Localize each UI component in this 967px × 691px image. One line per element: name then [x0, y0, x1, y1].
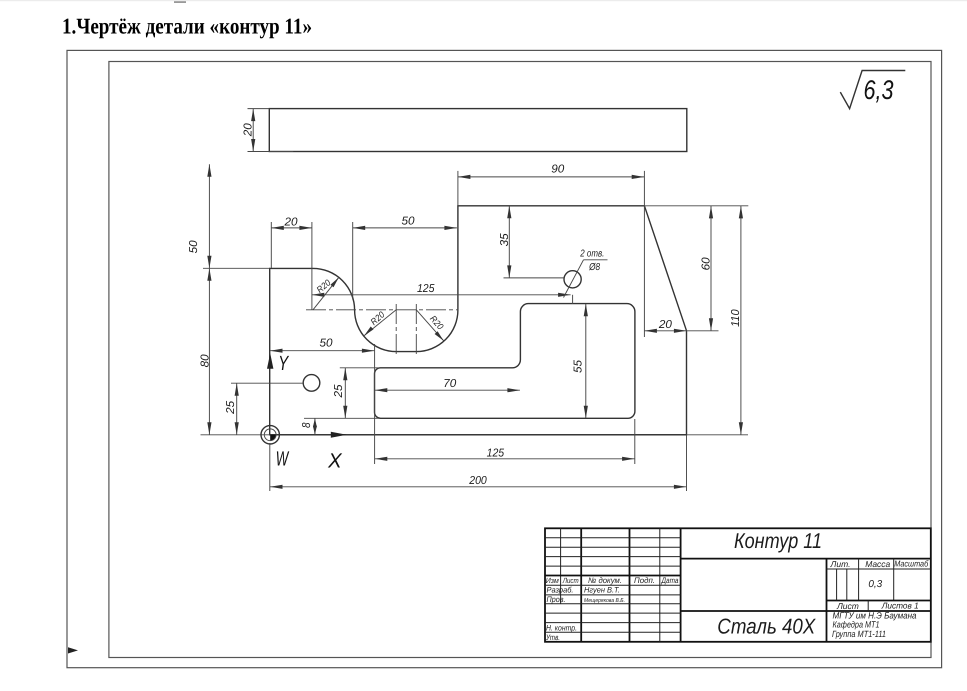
- svg-text:35: 35: [499, 233, 511, 247]
- svg-text:Разраб.: Разраб.: [547, 586, 574, 595]
- svg-text:2 отв.: 2 отв.: [580, 249, 605, 260]
- svg-text:8: 8: [301, 422, 313, 428]
- svg-text:R20: R20: [315, 278, 333, 295]
- svg-text:20: 20: [243, 123, 255, 138]
- svg-text:60: 60: [701, 257, 713, 271]
- svg-text:Y: Y: [278, 352, 289, 375]
- svg-text:W: W: [276, 447, 290, 470]
- svg-text:Н. контр.: Н. контр.: [546, 623, 577, 632]
- svg-text:125: 125: [487, 447, 505, 459]
- svg-text:Листов 1: Листов 1: [881, 601, 919, 611]
- svg-text:70: 70: [443, 378, 457, 390]
- svg-text:Дата: Дата: [661, 576, 679, 585]
- svg-text:Мещерякова В.Б.: Мещерякова В.Б.: [584, 598, 625, 604]
- svg-text:25: 25: [225, 400, 237, 415]
- svg-text:Лит.: Лит.: [830, 559, 851, 569]
- svg-text:Нгуен В.Т.: Нгуен В.Т.: [584, 586, 620, 595]
- svg-text:1.Чертёж детали «контур 11»: 1.Чертёж детали «контур 11»: [62, 14, 312, 39]
- svg-text:Ø8: Ø8: [588, 262, 600, 273]
- svg-text:50: 50: [320, 338, 334, 350]
- svg-text:Лист: Лист: [562, 576, 579, 585]
- svg-text:80: 80: [200, 354, 212, 368]
- svg-text:90: 90: [551, 164, 565, 176]
- svg-text:110: 110: [730, 309, 742, 327]
- svg-text:125: 125: [417, 283, 435, 295]
- svg-text:Контур 11: Контур 11: [734, 529, 822, 553]
- svg-text:Масштаб: Масштаб: [894, 559, 929, 569]
- svg-text:55: 55: [572, 359, 584, 373]
- svg-text:Кафедра МТ1: Кафедра МТ1: [833, 619, 880, 629]
- svg-text:R20: R20: [369, 310, 387, 327]
- svg-text:Утв.: Утв.: [545, 633, 560, 642]
- svg-text:6,3: 6,3: [864, 75, 894, 105]
- svg-text:Сталь 40X: Сталь 40X: [717, 615, 816, 639]
- svg-text:Пров.: Пров.: [547, 595, 566, 604]
- svg-text:№ докум.: № докум.: [588, 576, 622, 585]
- svg-text:Масса: Масса: [865, 559, 890, 569]
- svg-text:200: 200: [468, 475, 487, 487]
- svg-text:X: X: [327, 450, 343, 473]
- svg-text:Подп.: Подп.: [634, 576, 655, 585]
- svg-text:0,3: 0,3: [868, 579, 882, 590]
- svg-text:20: 20: [283, 216, 298, 228]
- svg-text:25: 25: [333, 384, 345, 399]
- svg-text:Изм: Изм: [546, 576, 559, 585]
- svg-text:Группа МТ1-111: Группа МТ1-111: [832, 629, 886, 639]
- svg-text:R20: R20: [428, 314, 445, 332]
- svg-text:50: 50: [188, 240, 200, 254]
- svg-text:20: 20: [658, 319, 673, 331]
- svg-text:50: 50: [402, 216, 416, 228]
